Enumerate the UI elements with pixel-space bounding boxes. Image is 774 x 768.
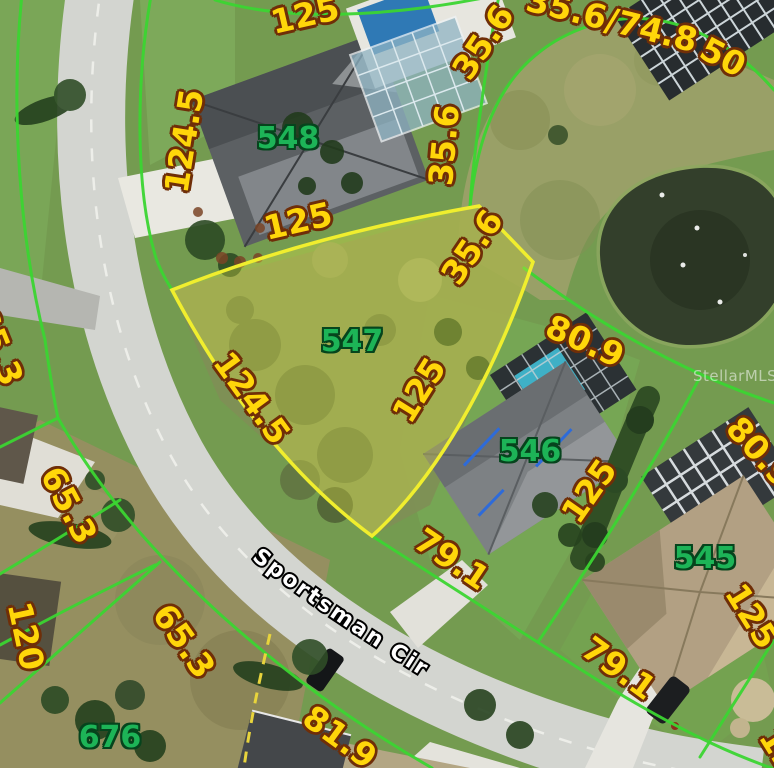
aerial-imagery: Sportsman Cir bbox=[0, 0, 774, 768]
aerial-parcel-map: Sportsman Cir 12535.635.6/74.850124.5125… bbox=[0, 0, 774, 768]
